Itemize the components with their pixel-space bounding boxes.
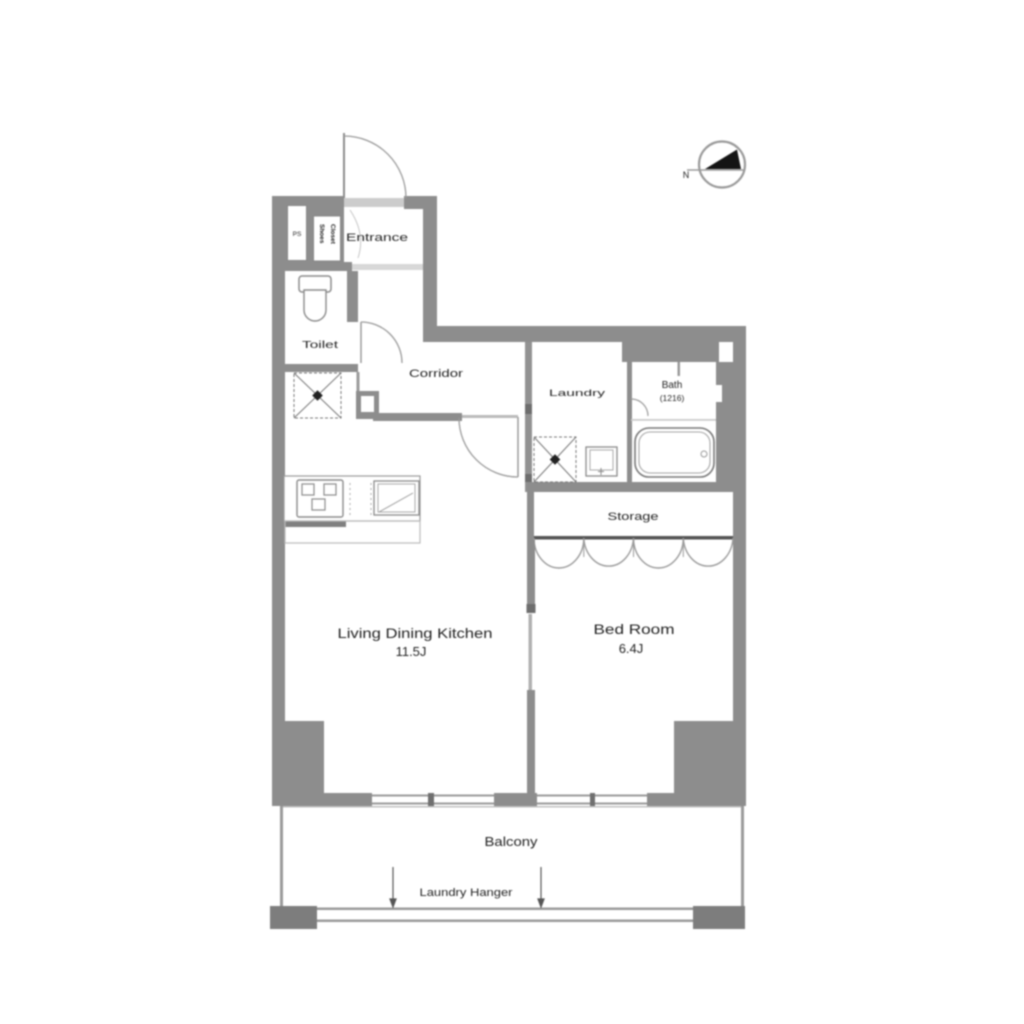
svg-text:Shoes: Shoes [318,224,325,244]
svg-text:Laundry Hanger: Laundry Hanger [420,887,513,899]
svg-text:(1216): (1216) [660,393,685,403]
svg-text:Living Dining Kitchen: Living Dining Kitchen [338,625,493,641]
svg-text:Corridor: Corridor [409,368,463,380]
svg-text:Closet: Closet [329,224,336,245]
svg-text:Laundry: Laundry [549,388,605,399]
svg-text:Bath: Bath [662,380,683,391]
svg-text:PS: PS [293,231,302,238]
svg-text:11.5J: 11.5J [396,644,427,659]
svg-text:Bed Room: Bed Room [594,621,675,637]
svg-text:Storage: Storage [608,511,659,523]
svg-text:Toilet: Toilet [302,340,338,351]
svg-text:6.4J: 6.4J [619,641,644,656]
svg-text:N: N [683,170,690,180]
svg-text:Balcony: Balcony [485,834,539,849]
svg-text:Entrance: Entrance [346,232,408,244]
